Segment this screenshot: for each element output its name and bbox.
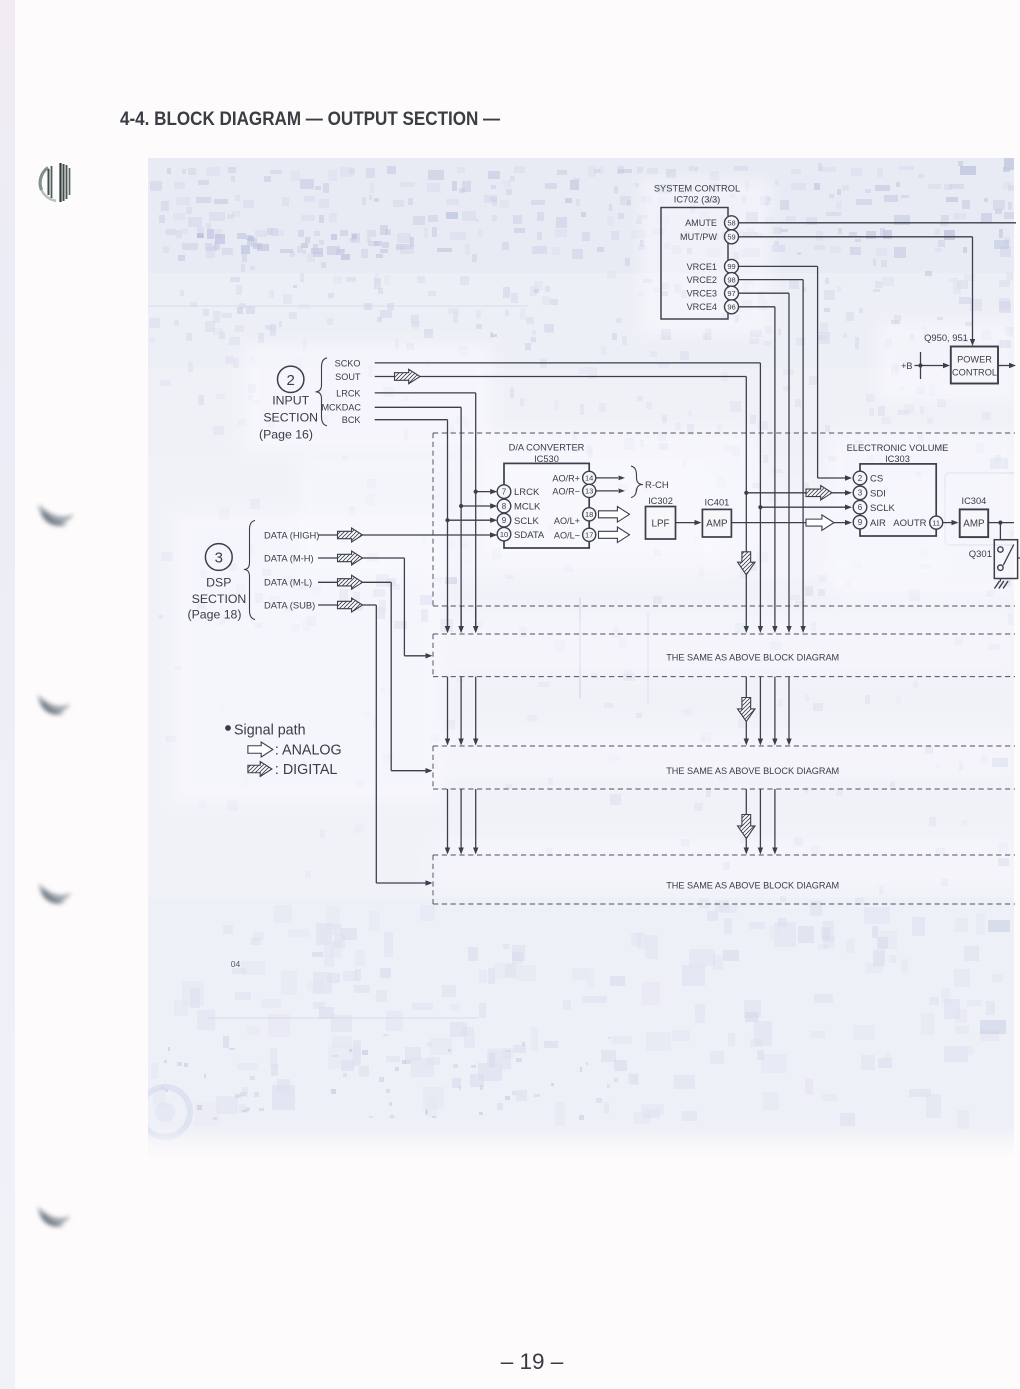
svg-text:IC303: IC303 bbox=[885, 454, 910, 464]
svg-text:CS: CS bbox=[870, 474, 883, 485]
svg-text:AO/R+: AO/R+ bbox=[552, 473, 580, 483]
svg-text:DATA (SUB): DATA (SUB) bbox=[264, 599, 315, 610]
svg-text:SDI: SDI bbox=[870, 488, 886, 499]
svg-text:THE SAME AS ABOVE BLOCK DIAGRA: THE SAME AS ABOVE BLOCK DIAGRAM bbox=[666, 881, 839, 891]
svg-text:11: 11 bbox=[932, 518, 940, 527]
svg-text:AIR: AIR bbox=[870, 518, 886, 529]
svg-text:99: 99 bbox=[727, 262, 735, 271]
svg-text:SCLK: SCLK bbox=[870, 503, 895, 514]
svg-text:96: 96 bbox=[727, 303, 735, 312]
svg-text:THE SAME AS ABOVE BLOCK DIAGRA: THE SAME AS ABOVE BLOCK DIAGRAM bbox=[666, 653, 839, 663]
svg-text:9: 9 bbox=[858, 518, 863, 527]
svg-text:AO/L+: AO/L+ bbox=[554, 516, 580, 526]
svg-text:SCLK: SCLK bbox=[514, 516, 539, 527]
svg-text:LRCK: LRCK bbox=[514, 487, 540, 498]
svg-text:AMUTE: AMUTE bbox=[685, 218, 717, 228]
svg-text:SECTION: SECTION bbox=[192, 592, 247, 606]
svg-text:Signal path: Signal path bbox=[234, 723, 306, 739]
svg-text:14: 14 bbox=[585, 474, 593, 483]
svg-text:SECTION: SECTION bbox=[263, 411, 318, 425]
svg-text:POWER: POWER bbox=[957, 355, 992, 365]
svg-text:(Page 18): (Page 18) bbox=[187, 608, 241, 622]
svg-text:AMP: AMP bbox=[963, 519, 985, 530]
svg-text:IC530: IC530 bbox=[534, 454, 559, 464]
svg-text:8: 8 bbox=[502, 502, 507, 511]
svg-text:DATA (M-H): DATA (M-H) bbox=[264, 552, 314, 563]
svg-text:: ANALOG: : ANALOG bbox=[275, 743, 342, 759]
svg-text:VRCE1: VRCE1 bbox=[687, 262, 717, 272]
svg-text:58: 58 bbox=[727, 219, 735, 228]
svg-text:MCKDAC: MCKDAC bbox=[321, 403, 361, 413]
svg-text:Q301: Q301 bbox=[969, 549, 992, 560]
svg-text:(Page 16): (Page 16) bbox=[259, 428, 313, 442]
svg-text:SDATA: SDATA bbox=[514, 530, 545, 541]
svg-text:IC702 (3/3): IC702 (3/3) bbox=[674, 195, 721, 205]
svg-text:6: 6 bbox=[858, 503, 863, 512]
svg-text:LPF: LPF bbox=[652, 519, 670, 530]
svg-text:AOUTR: AOUTR bbox=[893, 518, 926, 529]
svg-text:IC302: IC302 bbox=[648, 496, 673, 506]
svg-text:MUT/PW: MUT/PW bbox=[680, 232, 717, 242]
svg-text:98: 98 bbox=[727, 275, 735, 284]
svg-text:17: 17 bbox=[585, 531, 593, 540]
svg-text:3: 3 bbox=[215, 550, 223, 567]
svg-text:AO/R−: AO/R− bbox=[552, 486, 580, 496]
svg-text:+B: +B bbox=[901, 361, 912, 371]
svg-text:SOUT: SOUT bbox=[335, 372, 361, 382]
svg-text:13: 13 bbox=[585, 487, 593, 496]
svg-text:3: 3 bbox=[858, 489, 863, 498]
svg-text:SCKO: SCKO bbox=[335, 358, 361, 368]
svg-text:59: 59 bbox=[727, 233, 735, 242]
svg-text:10: 10 bbox=[500, 530, 508, 539]
svg-text:18: 18 bbox=[585, 510, 593, 519]
svg-text:AO/L−: AO/L− bbox=[554, 530, 580, 540]
svg-text:VRCE4: VRCE4 bbox=[687, 302, 717, 312]
svg-text:2: 2 bbox=[858, 474, 863, 483]
svg-text:D/A CONVERTER: D/A CONVERTER bbox=[509, 443, 585, 453]
svg-text:VRCE3: VRCE3 bbox=[687, 289, 717, 299]
svg-text:R-CH: R-CH bbox=[645, 480, 669, 491]
svg-text:97: 97 bbox=[727, 289, 735, 298]
svg-text:9: 9 bbox=[502, 516, 507, 525]
svg-text:LRCK: LRCK bbox=[336, 388, 360, 398]
svg-text:THE SAME AS ABOVE BLOCK DIAGRA: THE SAME AS ABOVE BLOCK DIAGRAM bbox=[666, 766, 839, 776]
svg-text:7: 7 bbox=[502, 487, 507, 496]
svg-text:04: 04 bbox=[231, 959, 241, 969]
svg-text:INPUT: INPUT bbox=[272, 394, 309, 408]
svg-text:IC304: IC304 bbox=[961, 496, 986, 506]
svg-text:2: 2 bbox=[287, 372, 295, 389]
svg-text:SYSTEM CONTROL: SYSTEM CONTROL bbox=[654, 184, 740, 194]
svg-text:MCLK: MCLK bbox=[514, 502, 541, 513]
svg-text:IC401: IC401 bbox=[704, 498, 729, 508]
svg-text:DATA (M-L): DATA (M-L) bbox=[264, 577, 312, 588]
svg-text:AMP: AMP bbox=[706, 519, 728, 530]
svg-text:Q950, 951: Q950, 951 bbox=[924, 332, 968, 343]
svg-text:DATA (HIGH): DATA (HIGH) bbox=[264, 530, 319, 541]
svg-text:DSP: DSP bbox=[206, 576, 231, 590]
svg-text:CONTROL: CONTROL bbox=[952, 368, 997, 378]
svg-text:ELECTRONIC VOLUME: ELECTRONIC VOLUME bbox=[847, 443, 949, 453]
svg-text:: DIGITAL: : DIGITAL bbox=[275, 762, 338, 778]
svg-text:BCK: BCK bbox=[342, 415, 361, 425]
svg-text:VRCE2: VRCE2 bbox=[687, 275, 717, 285]
